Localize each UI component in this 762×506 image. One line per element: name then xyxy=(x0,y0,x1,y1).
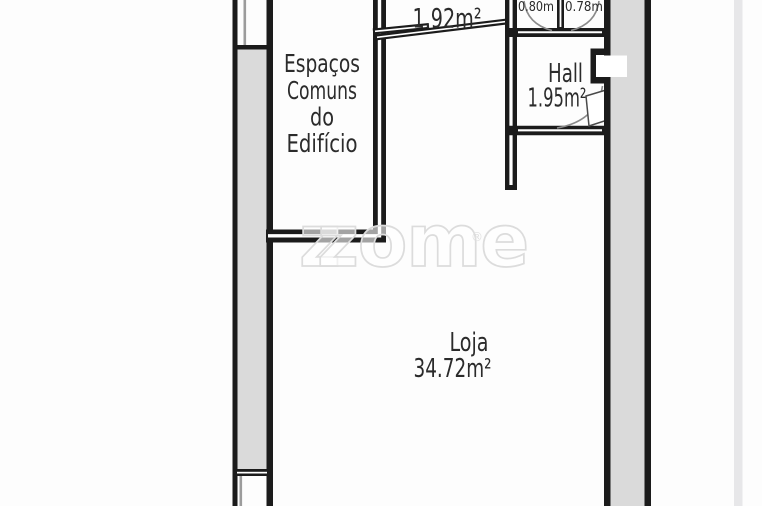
right-shaft-outer-wall xyxy=(645,0,652,506)
left-shaft-outer-wall xyxy=(233,0,238,506)
storage-area-label: 1.92m² xyxy=(413,4,482,35)
hall-doorway-opening xyxy=(596,56,627,78)
espacos-label-line2: Comuns xyxy=(287,76,357,105)
espacos-label-line4: Edifício xyxy=(287,129,358,158)
watermark-registered-icon: ® xyxy=(471,230,483,244)
left-shaft-bottom-divider-core xyxy=(237,472,267,474)
left-shaft-top-divider xyxy=(237,45,267,50)
hall-door-jamb-side xyxy=(591,49,597,84)
closet-left-dim-label: 0.80m xyxy=(518,0,554,15)
watermark: z zome ® xyxy=(299,199,528,283)
espacos-label-line1: Espaços xyxy=(284,49,360,78)
room-labels: Espaços Comuns do Edifício 1.92m² 0.80m … xyxy=(284,0,603,384)
espacos-label-line3: do xyxy=(310,103,334,132)
closet-right-dim-label: 0.78m xyxy=(565,0,603,15)
hall-area-label: 1.95m² xyxy=(528,84,587,114)
floor-plan-page: Espaços Comuns do Edifício 1.92m² 0.80m … xyxy=(0,0,762,506)
left-shaft-bottom-line xyxy=(240,474,243,506)
left-shaft-inner-wall xyxy=(267,0,274,506)
watermark-wordmark: zome xyxy=(317,199,528,283)
loja-area-label: 34.72m² xyxy=(414,354,492,384)
photo-edge-band xyxy=(734,0,743,506)
floor-plan: Espaços Comuns do Edifício 1.92m² 0.80m … xyxy=(0,0,762,506)
left-shaft-gray-fill xyxy=(237,49,267,470)
right-shaft xyxy=(591,0,652,506)
left-shaft-top-line xyxy=(244,0,247,49)
left-shaft xyxy=(233,0,274,506)
